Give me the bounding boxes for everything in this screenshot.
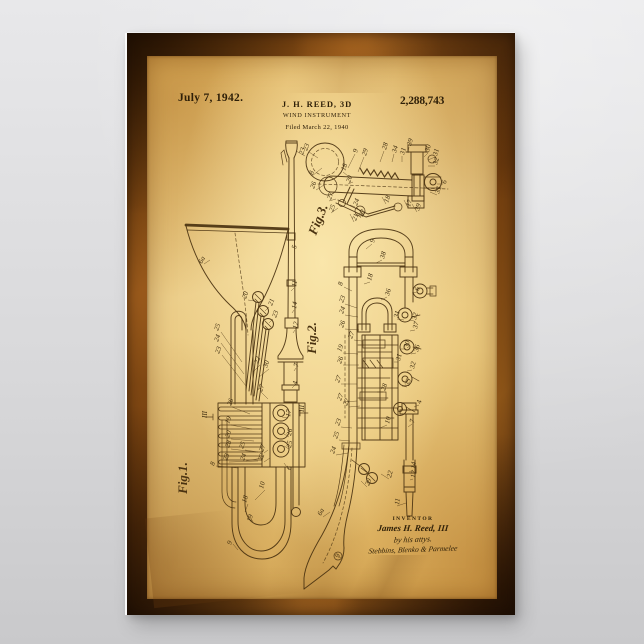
inventor-signature: James H. Reed, III	[342, 523, 483, 533]
patent-number: 2,288,743	[400, 95, 444, 107]
inventor-caption: INVENTOR	[343, 516, 483, 522]
filed-date: Filed March 22, 1940	[147, 124, 487, 131]
product-photo-scene: 6a20212325242323851114127223042717IIIIII…	[0, 0, 644, 644]
patent-title: WIND INSTRUMENT	[147, 112, 487, 119]
